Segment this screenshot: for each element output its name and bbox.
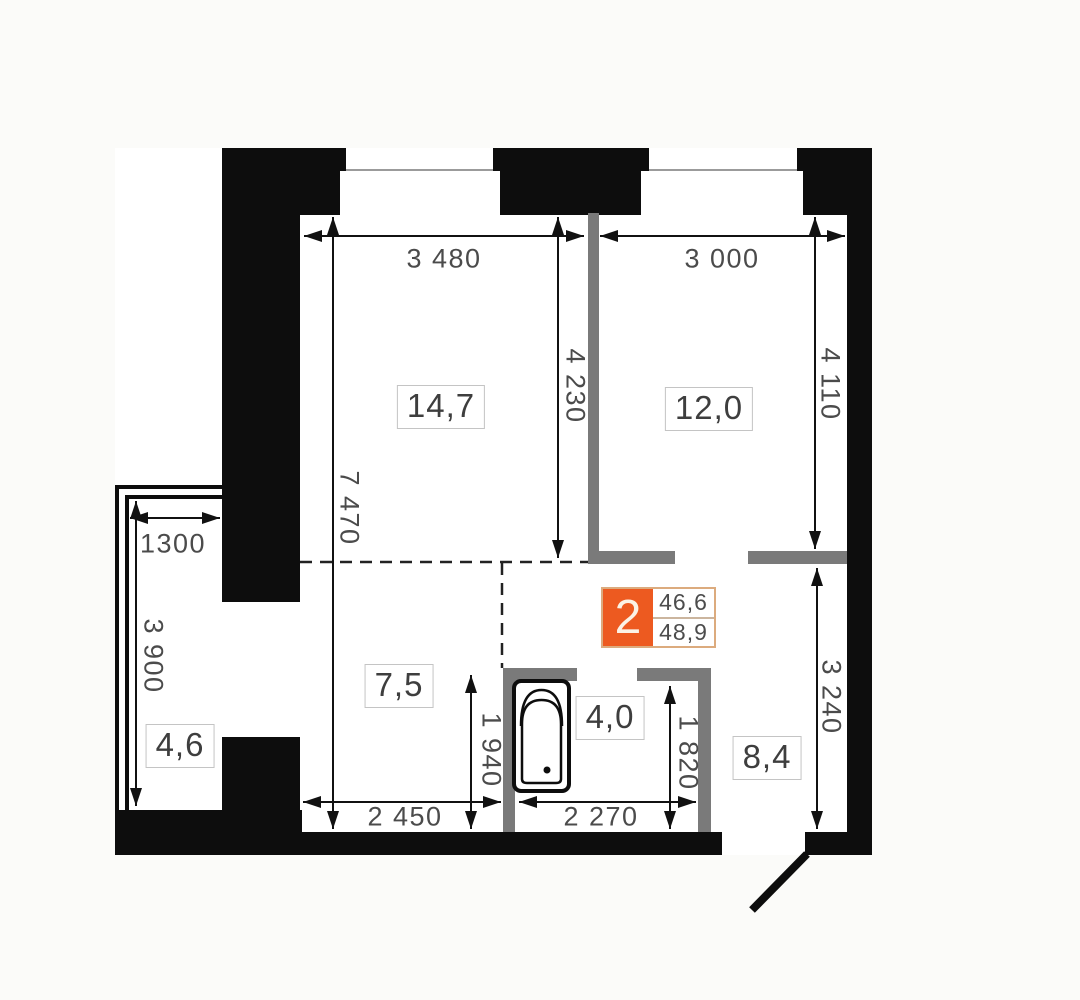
room-label-living: 14,7 [397,385,485,429]
room-label-hall: 7,5 [365,664,434,708]
apartment-badge: 2 46,6 48,9 [601,587,716,648]
dim-label-corridor-depth: 3 240 [816,659,847,734]
floor-plan: 3 480 3 000 1300 2 450 2 270 4 230 4 110… [0,0,1080,1000]
dim-label-bedroom-width: 3 000 [684,244,759,275]
dim-label-living-depth: 4 230 [560,348,591,423]
apartment-areas: 46,6 48,9 [653,589,714,646]
dim-label-hall-width: 2 450 [367,802,442,833]
dim-label-hall-depth: 1 940 [476,712,507,787]
entrance-door-leaf [752,854,807,910]
apartment-living-area: 46,6 [653,589,714,619]
dim-label-balcony-depth: 3 900 [138,618,169,693]
apartment-total-area: 48,9 [653,619,714,647]
dim-label-left-total-depth: 7 470 [334,470,365,545]
room-label-balcony: 4,6 [146,724,215,768]
room-label-bedroom: 12,0 [665,387,753,431]
dimension-lines-layer [0,0,1080,1000]
dim-label-bathroom-width: 2 270 [563,802,638,833]
dim-label-bathroom-depth: 1 820 [673,715,704,790]
bathtub-icon [514,681,569,791]
dim-label-bedroom-depth: 4 110 [815,347,846,420]
room-label-bathroom: 4,0 [576,696,645,740]
apartment-rooms-count: 2 [603,589,653,646]
room-label-corridor: 8,4 [733,736,802,780]
dim-label-balcony-width: 1300 [140,529,206,560]
dim-label-living-width: 3 480 [406,244,481,275]
